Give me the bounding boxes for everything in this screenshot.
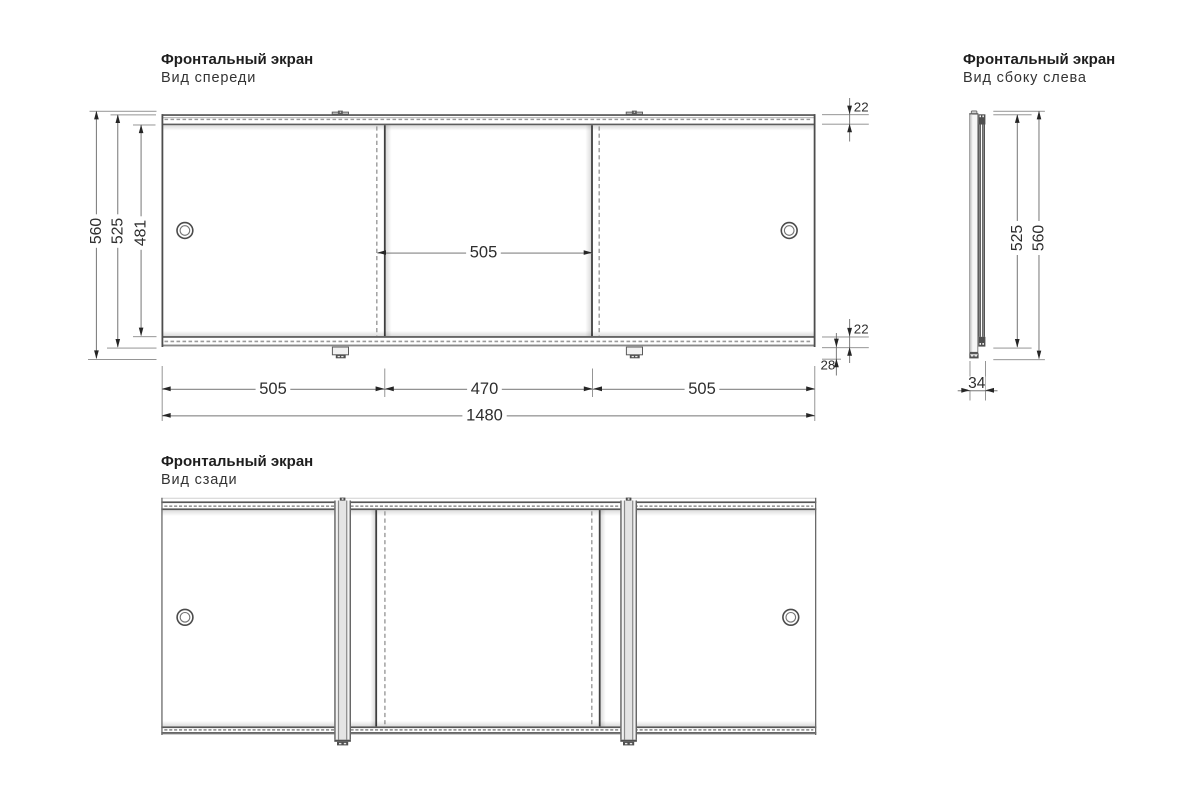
svg-text:22: 22 [854,100,869,115]
svg-text:560: 560 [1031,225,1048,252]
svg-text:Фронтальный экран: Фронтальный экран [161,51,313,68]
svg-text:34: 34 [968,375,986,392]
svg-text:560: 560 [88,218,105,245]
svg-text:Фронтальный экран: Фронтальный экран [161,453,313,470]
svg-text:525: 525 [1009,225,1026,252]
svg-text:28: 28 [821,357,836,372]
svg-text:470: 470 [471,380,499,398]
svg-text:22: 22 [854,321,869,336]
svg-text:505: 505 [688,380,716,398]
svg-text:1480: 1480 [466,406,503,424]
svg-text:Вид сзади: Вид сзади [161,472,237,488]
svg-text:525: 525 [109,218,126,245]
svg-text:481: 481 [133,220,150,247]
svg-text:Вид сбоку слева: Вид сбоку слева [963,70,1087,86]
svg-text:Фронтальный экран: Фронтальный экран [963,51,1115,68]
svg-text:505: 505 [470,244,498,262]
svg-text:505: 505 [259,380,287,398]
svg-text:Вид спереди: Вид спереди [161,70,256,86]
